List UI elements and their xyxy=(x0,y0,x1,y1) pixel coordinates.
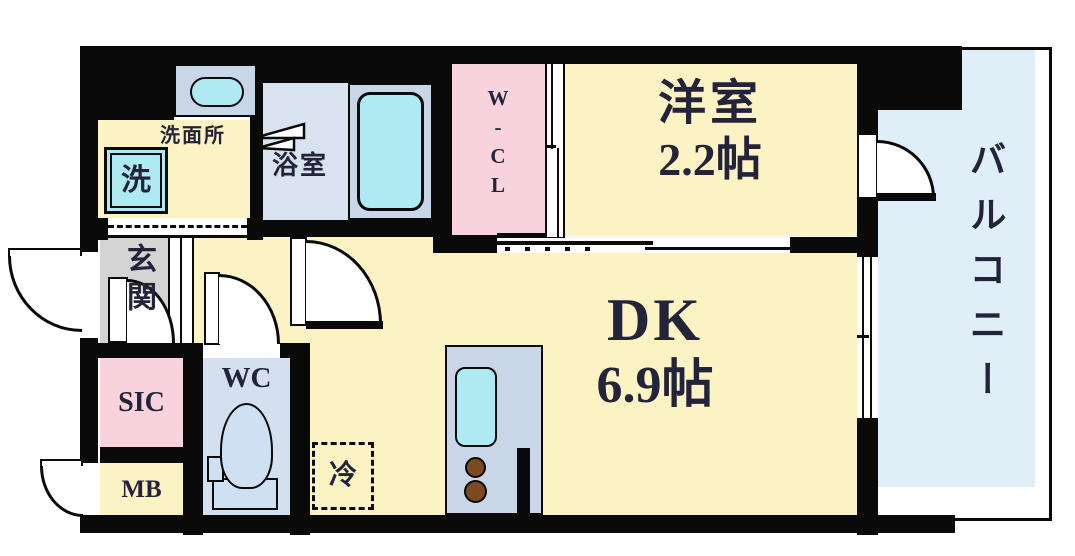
bathroom-label: 浴室 xyxy=(272,153,328,179)
wall-bath-bottom xyxy=(250,220,445,237)
wall-washroom-bottom-left xyxy=(80,218,108,240)
balcony-window xyxy=(857,257,878,418)
window-line xyxy=(870,257,872,418)
closet-door-tick xyxy=(547,145,556,148)
walk-in-closet-label: W-CL xyxy=(487,86,508,202)
western-room-size: 2.2帖 xyxy=(570,137,850,183)
shoe-closet-label: SIC xyxy=(100,358,183,447)
closet-door-line xyxy=(557,148,559,237)
wall-vanity-corner xyxy=(98,64,174,120)
balcony-outline-right xyxy=(1049,47,1052,521)
wall-block-top-right xyxy=(857,46,962,110)
wall-tub-right xyxy=(433,46,452,253)
wall-washroom-bottom-right xyxy=(247,218,263,240)
wall-wc-right xyxy=(290,343,310,535)
kitchen-sink xyxy=(455,367,497,447)
slider-tick xyxy=(565,247,570,251)
western-room-name: 洋室 xyxy=(570,80,850,128)
wc-door-opening xyxy=(203,343,280,358)
window-tick xyxy=(857,335,869,338)
slider-tick xyxy=(505,247,510,251)
slider-panel-1 xyxy=(497,241,653,245)
washing-machine: 洗 xyxy=(104,147,168,214)
washroom-label: 洗面所 xyxy=(160,126,226,146)
bathtub xyxy=(357,92,424,211)
refrigerator-label: 冷 xyxy=(329,462,357,490)
dining-kitchen-label: DK 6.9帖 xyxy=(495,290,815,412)
dining-kitchen-name: DK xyxy=(495,290,815,350)
dk-door-closed-bar xyxy=(306,321,383,329)
entrance-door-swing xyxy=(8,256,82,332)
dk-door-leaf xyxy=(290,237,307,326)
sliding-door-dashes xyxy=(108,225,247,228)
balcony-door-closed-bar xyxy=(877,193,936,201)
floor-plan: 洗 冷 洗面所 浴室 W-CL 洋室 2.2帖 バルコニー DK 6.9帖 xyxy=(0,0,1075,556)
closet-door-line xyxy=(551,64,553,149)
toilet-bowl xyxy=(220,403,273,489)
stove-burner xyxy=(464,480,487,503)
washer-label: 洗 xyxy=(121,166,151,196)
slider-tick xyxy=(525,247,530,251)
entrance-door-opening xyxy=(80,252,98,338)
wall-sic-mb xyxy=(100,447,183,463)
balcony-outline-bottom xyxy=(953,518,1052,521)
slider-tick xyxy=(545,247,550,251)
balcony-floor xyxy=(878,50,1035,487)
slider-tick xyxy=(585,247,590,251)
meter-box-label: MB xyxy=(100,463,183,515)
refrigerator-space: 冷 xyxy=(312,442,374,510)
wall-westroom-bottom xyxy=(790,237,878,253)
wall-bottom xyxy=(80,515,955,533)
kitchen-divider-wall xyxy=(517,448,530,515)
balcony-door-leaf xyxy=(857,133,878,199)
western-room-label: 洋室 2.2帖 xyxy=(570,80,850,183)
dining-kitchen-size: 6.9帖 xyxy=(495,360,815,412)
balcony-label: バルコニー xyxy=(965,140,1002,415)
entrance-step-line xyxy=(180,238,182,343)
washroom-sliding-door xyxy=(108,222,247,238)
westroom-sliding-door xyxy=(497,238,790,253)
slider-panel-2 xyxy=(645,247,790,250)
wall-wc-left xyxy=(183,343,203,535)
toilet-label: WC xyxy=(203,358,290,398)
meter-box-door-swing xyxy=(40,466,83,517)
vanity-counter xyxy=(174,64,257,117)
closet-sliding-door xyxy=(545,64,565,237)
wall-bath-top xyxy=(263,46,433,83)
wall-top xyxy=(80,46,878,64)
wall-wcl-bottom xyxy=(445,235,497,253)
vanity-basin xyxy=(190,77,244,107)
stove-burner xyxy=(465,457,486,478)
wc-door-leaf xyxy=(204,272,220,345)
balcony-outline-top xyxy=(962,47,1052,50)
entrance-label: 玄関 xyxy=(123,243,153,319)
